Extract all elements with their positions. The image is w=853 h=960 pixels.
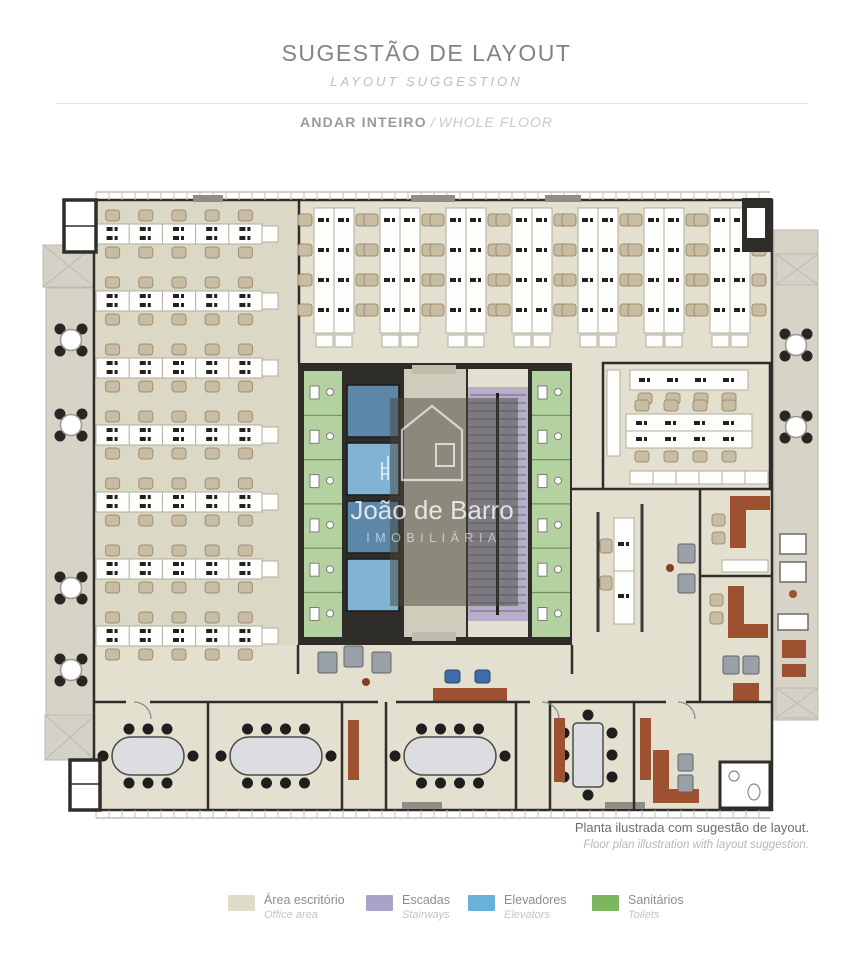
chair — [106, 277, 120, 288]
chair — [172, 411, 186, 422]
desk-items — [470, 218, 476, 222]
section-title-pt: ANDAR INTEIRO — [300, 114, 427, 130]
desk-items — [239, 495, 245, 499]
desk-items — [668, 278, 674, 282]
desk-items — [206, 571, 212, 575]
chair — [139, 344, 153, 355]
desk-items — [173, 361, 179, 365]
legend-item-office-area: Área escritório Office area — [228, 893, 345, 922]
chair — [298, 214, 312, 226]
chair — [694, 244, 708, 256]
chair — [139, 612, 153, 623]
desk-items — [206, 303, 212, 307]
chair — [139, 448, 153, 459]
desk-items — [206, 638, 212, 642]
chair — [238, 277, 252, 288]
desk-items — [206, 437, 212, 441]
chair — [635, 451, 649, 462]
chair — [496, 274, 510, 286]
chair — [664, 400, 678, 411]
end-cabinet — [262, 427, 278, 443]
desk-items — [318, 248, 324, 252]
desk-items — [239, 504, 245, 508]
chair — [238, 411, 252, 422]
chair — [205, 344, 219, 355]
chair — [106, 515, 120, 526]
chair — [238, 582, 252, 593]
legend-label-pt: Sanitários — [628, 893, 684, 909]
desk-items — [665, 437, 671, 441]
desk-items — [602, 248, 608, 252]
end-cabinet — [646, 335, 663, 347]
desk-items — [239, 638, 245, 642]
chair — [106, 545, 120, 556]
desk-items — [239, 227, 245, 231]
desk-items — [648, 278, 654, 282]
desk-items — [668, 308, 674, 312]
desk-items — [714, 218, 720, 222]
desk-items — [639, 378, 645, 382]
chair — [172, 344, 186, 355]
section-heading: ANDAR INTEIRO / WHOLE FLOOR — [0, 114, 853, 130]
floor-plan-drawing: João de BarroIMOBILIÁRIA — [30, 162, 820, 824]
chair — [172, 612, 186, 623]
chair — [600, 539, 612, 553]
desk-items — [602, 308, 608, 312]
desk-items — [140, 428, 146, 432]
desk-items — [338, 278, 344, 282]
desk-items — [140, 629, 146, 633]
legend-label-en: Elevators — [504, 909, 567, 923]
chair — [364, 214, 378, 226]
desk-items — [239, 361, 245, 365]
chair — [106, 649, 120, 660]
chair — [205, 478, 219, 489]
chair — [722, 400, 736, 411]
armchair — [723, 656, 739, 674]
desk-items — [318, 278, 324, 282]
desk-items — [107, 227, 113, 231]
chair — [106, 210, 120, 221]
toilet-fixture — [538, 430, 547, 443]
meeting-table — [230, 737, 322, 775]
desk-items — [694, 421, 700, 425]
end-cabinet — [712, 335, 729, 347]
desk-items — [338, 308, 344, 312]
meeting-table — [404, 737, 496, 775]
plan-caption: Planta ilustrada com sugestão de layout.… — [575, 820, 809, 851]
desk-items — [723, 437, 729, 441]
chair — [172, 649, 186, 660]
desk-items — [648, 218, 654, 222]
chair — [139, 247, 153, 258]
desk-items — [206, 495, 212, 499]
end-cabinet — [599, 335, 616, 347]
armchair — [743, 656, 759, 674]
end-cabinet — [262, 360, 278, 376]
chair — [139, 545, 153, 556]
legend-label-en: Office area — [264, 909, 345, 923]
desk-items — [206, 504, 212, 508]
end-cabinet — [262, 293, 278, 309]
floor-plan: João de BarroIMOBILIÁRIA — [30, 162, 820, 824]
armchair — [678, 574, 695, 593]
chair — [139, 478, 153, 489]
chair — [205, 411, 219, 422]
desk-items — [536, 218, 542, 222]
chair — [106, 381, 120, 392]
chair — [238, 381, 252, 392]
legend-item-toilets: Sanitários Toilets — [592, 893, 684, 922]
desk-items — [140, 437, 146, 441]
cabinet — [607, 370, 620, 456]
chair — [635, 400, 649, 411]
chair — [238, 649, 252, 660]
desk-items — [107, 638, 113, 642]
desk-items — [695, 378, 701, 382]
desk-items — [107, 294, 113, 298]
chair — [106, 344, 120, 355]
chair — [172, 582, 186, 593]
desk-items — [107, 629, 113, 633]
legend-label-en: Toilets — [628, 909, 684, 923]
desk-items — [107, 562, 113, 566]
desk-items — [470, 308, 476, 312]
chair — [238, 478, 252, 489]
toilet-fixture — [538, 608, 547, 621]
desk-items — [450, 308, 456, 312]
desk-items — [239, 370, 245, 374]
watermark-name: João de Barro — [350, 495, 513, 525]
desk-items — [140, 227, 146, 231]
desk-items — [173, 303, 179, 307]
desk-items — [173, 629, 179, 633]
chair — [106, 448, 120, 459]
end-cabinet — [262, 628, 278, 644]
header-divider — [56, 103, 808, 104]
chair — [752, 304, 766, 316]
desk-items — [107, 361, 113, 365]
chair — [694, 274, 708, 286]
desk-items — [239, 562, 245, 566]
desk-items — [723, 421, 729, 425]
end-cabinet — [335, 335, 352, 347]
end-cabinet — [731, 335, 748, 347]
chair — [106, 247, 120, 258]
washroom — [720, 762, 770, 808]
desk-items — [384, 278, 390, 282]
chair — [752, 274, 766, 286]
chair — [106, 314, 120, 325]
chair — [496, 214, 510, 226]
desk-items — [173, 638, 179, 642]
desk-items — [536, 278, 542, 282]
desk-items — [107, 303, 113, 307]
armchair — [318, 652, 337, 673]
chair — [694, 304, 708, 316]
desk-items — [206, 370, 212, 374]
desk-items — [450, 218, 456, 222]
end-cabinet — [316, 335, 333, 347]
plant — [362, 678, 370, 686]
chair — [496, 304, 510, 316]
desk-items — [338, 248, 344, 252]
chair — [172, 314, 186, 325]
desk-items — [723, 378, 729, 382]
desk-items — [714, 248, 720, 252]
credenza — [722, 560, 768, 572]
desk-items — [648, 248, 654, 252]
caption-pt: Planta ilustrada com sugestão de layout. — [575, 820, 809, 835]
chair — [205, 545, 219, 556]
chair — [712, 532, 725, 544]
desk-items — [140, 562, 146, 566]
desk-items — [173, 294, 179, 298]
end-cabinet — [514, 335, 531, 347]
toilet-fixture — [310, 475, 319, 488]
desk-items — [536, 308, 542, 312]
desk-items — [694, 437, 700, 441]
toilet-fixture — [310, 563, 319, 576]
chair — [562, 304, 576, 316]
end-cabinet — [262, 561, 278, 577]
desk-items — [668, 248, 674, 252]
desk-items — [618, 542, 624, 546]
desk-items — [516, 278, 522, 282]
desk-items — [648, 308, 654, 312]
chair — [106, 411, 120, 422]
watermark-tagline: IMOBILIÁRIA — [366, 530, 502, 545]
desk-items — [602, 218, 608, 222]
chair — [205, 612, 219, 623]
desk-items — [140, 303, 146, 307]
desk-items — [239, 571, 245, 575]
toilet-fixture — [310, 519, 319, 532]
plant — [666, 564, 674, 572]
desk-items — [667, 378, 673, 382]
chair — [205, 314, 219, 325]
desk-items — [404, 308, 410, 312]
section-title-en: WHOLE FLOOR — [439, 114, 553, 130]
end-cabinet — [467, 335, 484, 347]
desk-items — [173, 571, 179, 575]
desk-items — [516, 218, 522, 222]
desk-items — [239, 629, 245, 633]
chair — [172, 478, 186, 489]
chair — [205, 515, 219, 526]
toilet-fixture — [310, 608, 319, 621]
desk-items — [239, 294, 245, 298]
end-cabinet — [448, 335, 465, 347]
chair — [205, 448, 219, 459]
desk-items — [470, 248, 476, 252]
meeting-table — [112, 737, 184, 775]
chair — [238, 448, 252, 459]
legend-item-stairways: Escadas Stairways — [366, 893, 450, 922]
toilet-fixture — [310, 430, 319, 443]
chair — [238, 612, 252, 623]
counter — [433, 688, 507, 701]
chair — [298, 244, 312, 256]
armchair — [678, 754, 693, 771]
elevators-swatch — [468, 895, 495, 911]
end-cabinet — [262, 226, 278, 242]
chair — [298, 304, 312, 316]
chair — [139, 411, 153, 422]
chair — [710, 612, 723, 624]
chair — [628, 244, 642, 256]
end-cabinet — [665, 335, 682, 347]
window-sill — [193, 195, 223, 202]
desk-items — [338, 218, 344, 222]
chair — [712, 514, 725, 526]
chair — [664, 451, 678, 462]
chair — [298, 274, 312, 286]
desk-items — [107, 370, 113, 374]
chair — [139, 314, 153, 325]
desk-items — [602, 278, 608, 282]
legend-item-elevators: Elevadores Elevators — [468, 893, 567, 922]
desk-items — [140, 495, 146, 499]
legend-label-pt: Elevadores — [504, 893, 567, 909]
desk-items — [206, 294, 212, 298]
desk-items — [516, 248, 522, 252]
desk-items — [384, 218, 390, 222]
desk-items — [668, 218, 674, 222]
chair — [694, 214, 708, 226]
chair — [106, 582, 120, 593]
chair — [172, 210, 186, 221]
armchair — [678, 544, 695, 563]
end-cabinet — [401, 335, 418, 347]
meeting-table — [573, 723, 603, 787]
chair — [172, 448, 186, 459]
chair — [628, 304, 642, 316]
desk-items — [450, 278, 456, 282]
desk-items — [582, 248, 588, 252]
desk-items — [470, 278, 476, 282]
desk-items — [173, 562, 179, 566]
chair — [430, 214, 444, 226]
desk-items — [173, 370, 179, 374]
chair — [139, 582, 153, 593]
chair — [562, 274, 576, 286]
armchair — [344, 646, 363, 667]
chair — [172, 247, 186, 258]
desk-items — [206, 629, 212, 633]
desk-items — [536, 248, 542, 252]
chair — [106, 612, 120, 623]
chair — [693, 400, 707, 411]
desk-items — [636, 421, 642, 425]
chair — [710, 594, 723, 606]
desk-items — [239, 236, 245, 240]
toilet-fixture — [538, 563, 547, 576]
chair — [205, 210, 219, 221]
desk-items — [239, 303, 245, 307]
chair — [628, 274, 642, 286]
page-title: SUGESTÃO DE LAYOUT — [0, 40, 853, 67]
desk-items — [107, 437, 113, 441]
toilets-swatch — [592, 895, 619, 911]
chair — [430, 244, 444, 256]
desk-items — [173, 227, 179, 231]
page-header: SUGESTÃO DE LAYOUT LAYOUT SUGGESTION — [0, 40, 853, 89]
desk-items — [107, 428, 113, 432]
legend-label-pt: Área escritório — [264, 893, 345, 909]
chair — [238, 314, 252, 325]
chair — [496, 244, 510, 256]
chair — [172, 545, 186, 556]
desk-items — [206, 562, 212, 566]
chair — [205, 247, 219, 258]
chair — [172, 277, 186, 288]
chair — [172, 381, 186, 392]
page-subtitle: LAYOUT SUGGESTION — [0, 74, 853, 89]
chair — [106, 478, 120, 489]
chair — [628, 214, 642, 226]
desk-items — [173, 437, 179, 441]
credenza — [640, 718, 651, 780]
desk-items — [404, 278, 410, 282]
section-separator: / — [427, 114, 439, 130]
desk-items — [384, 248, 390, 252]
end-cabinet — [580, 335, 597, 347]
desk-items — [173, 504, 179, 508]
window-sill — [545, 195, 581, 202]
team-room — [603, 363, 770, 489]
chair — [139, 210, 153, 221]
desk-items — [107, 236, 113, 240]
caption-en: Floor plan illustration with layout sugg… — [575, 839, 809, 851]
desk-items — [107, 495, 113, 499]
chair — [238, 545, 252, 556]
window-sill — [402, 802, 442, 809]
chair — [139, 649, 153, 660]
chair — [205, 381, 219, 392]
desk-items — [140, 236, 146, 240]
chair — [562, 244, 576, 256]
chair — [600, 576, 612, 590]
chair — [205, 582, 219, 593]
end-cabinet — [262, 494, 278, 510]
desk-items — [582, 278, 588, 282]
toilet-fixture — [310, 386, 319, 399]
chair — [430, 274, 444, 286]
chair — [139, 277, 153, 288]
chair — [172, 515, 186, 526]
chair — [364, 274, 378, 286]
window-sill — [411, 195, 455, 202]
toilets-left — [304, 371, 342, 637]
desk-items — [173, 428, 179, 432]
desk-items — [384, 308, 390, 312]
desk-items — [404, 218, 410, 222]
toilet-fixture — [538, 475, 547, 488]
desk-items — [206, 227, 212, 231]
chair — [139, 381, 153, 392]
chair — [205, 649, 219, 660]
desk-items — [404, 248, 410, 252]
chair — [722, 451, 736, 462]
desk-items — [140, 504, 146, 508]
chair — [364, 304, 378, 316]
stairways-swatch — [366, 895, 393, 911]
chair — [238, 210, 252, 221]
chair — [139, 515, 153, 526]
desk-items — [618, 594, 624, 598]
chair — [238, 515, 252, 526]
